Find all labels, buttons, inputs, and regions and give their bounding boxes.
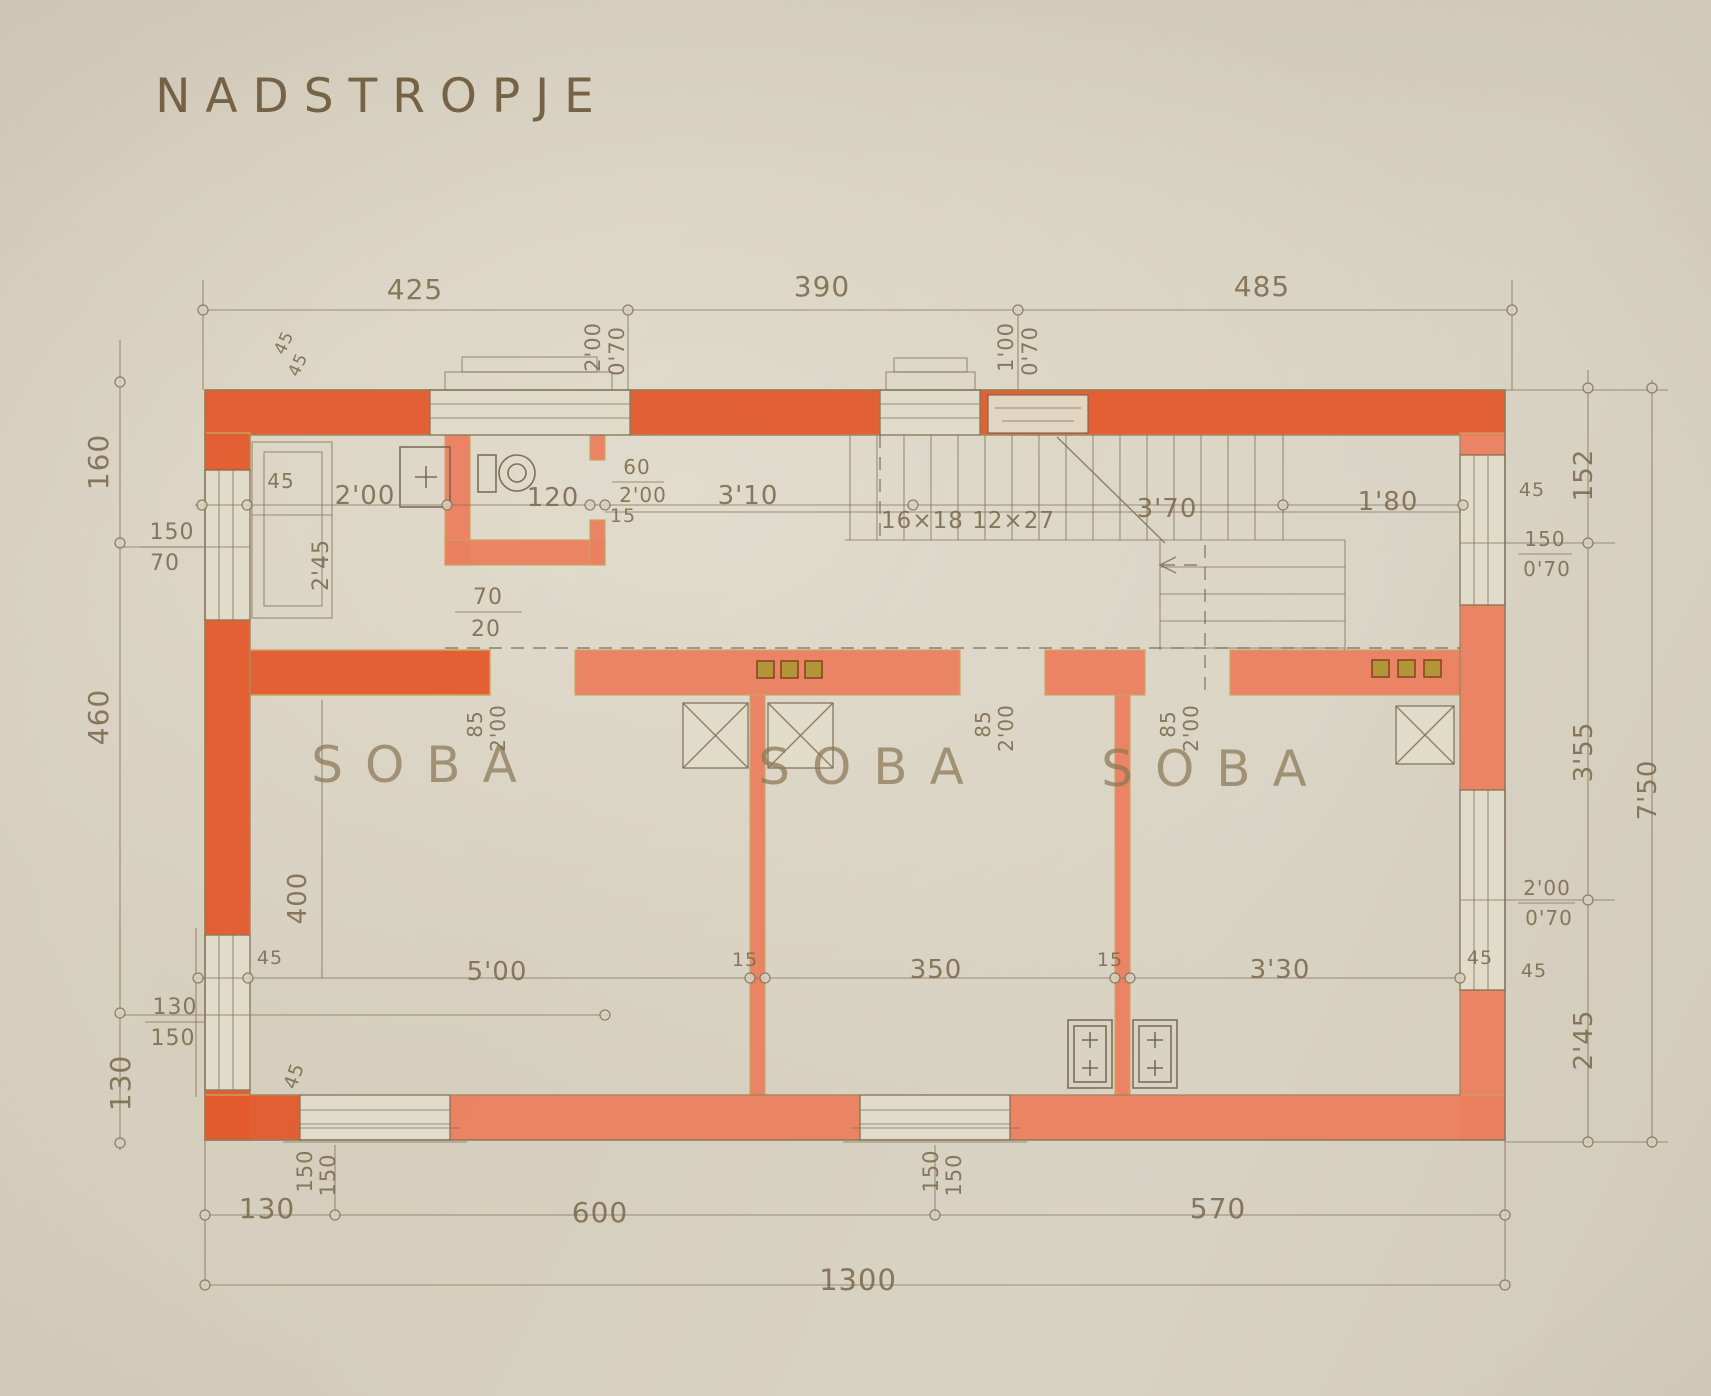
dim-room1-500: 5'00 (467, 957, 528, 987)
dim-bw2-150b: 150 (942, 1153, 966, 1196)
flue-box-3 (1396, 706, 1454, 764)
dim-bw1-150a: 150 (293, 1149, 317, 1192)
window-left-2 (196, 928, 250, 1097)
dim-wcdoor-60: 60 (623, 455, 650, 479)
chimney-recess (988, 395, 1088, 433)
dim-bottom-600: 600 (572, 1196, 628, 1229)
dim-door3-85: 85 (1156, 710, 1180, 737)
floor-plan-drawing: NADSTROPJE4253904852'000'701'000'7045451… (0, 0, 1711, 1396)
dim-right-45b: 45 (1521, 960, 1547, 982)
dim-right-750: 7'50 (1633, 760, 1663, 821)
dim-top-390: 390 (794, 270, 850, 303)
room-label-2: SOBA (758, 738, 986, 796)
dim-room2-350: 350 (910, 955, 963, 985)
flue-box-1 (683, 703, 748, 768)
dim-left-win-150: 150 (151, 1026, 196, 1051)
wc-wall-right-bottom (590, 520, 605, 565)
stove-fixture-1 (1068, 1020, 1112, 1088)
dim-right-win-070: 0'70 (1523, 557, 1571, 581)
dim-corridor-310: 3'10 (718, 481, 779, 511)
dim-bw1-150b: 150 (316, 1153, 340, 1196)
vent-grilles-right (1372, 660, 1441, 677)
window-right-1 (1460, 455, 1505, 605)
dim-bath-200: 2'00 (335, 481, 396, 511)
dim-bl-45: 45 (257, 947, 283, 969)
dim-corner-niche-20: 20 (471, 617, 501, 642)
dim-room3-330: 3'30 (1250, 955, 1311, 985)
dim-door1-85: 85 (463, 710, 487, 737)
dim-top-window-070: 0'70 (605, 326, 629, 376)
dim-top-window-200: 2'00 (581, 322, 605, 372)
dim-wc-15: 15 (610, 505, 636, 527)
dim-right-152: 152 (1569, 449, 1599, 502)
dim-door1-200: 2'00 (486, 704, 510, 752)
wc-wall-bottom (445, 540, 605, 565)
dim-left-150: 150 (150, 520, 195, 545)
room-label-3: SOBA (1101, 740, 1329, 798)
dim-left-160: 160 (82, 434, 115, 490)
dim-bw2-150a: 150 (919, 1149, 943, 1192)
dim-stair-180: 1'80 (1358, 487, 1419, 517)
dim-right-45a: 45 (1519, 479, 1545, 501)
dim-bottom-130: 130 (239, 1192, 295, 1225)
dim-wcdoor-200: 2'00 (619, 483, 667, 507)
dim-partition-15b: 15 (1097, 949, 1123, 971)
wc-wall-right-top (590, 435, 605, 460)
plan-title: NADSTROPJE (155, 69, 609, 124)
dim-bl-45rot: 45 (280, 1060, 310, 1092)
dim-right-win2-200: 2'00 (1523, 876, 1571, 900)
dim-door2-200: 2'00 (994, 704, 1018, 752)
dim-right-245: 2'45 (1569, 1010, 1599, 1071)
dim-top-425: 425 (387, 273, 443, 306)
dim-door3-200: 2'00 (1179, 704, 1203, 752)
dim-right-win-150: 150 (1524, 527, 1565, 551)
dim-niche-45: 45 (267, 469, 294, 493)
dim-door2-85: 85 (971, 710, 995, 737)
dim-partition-15a: 15 (732, 949, 758, 971)
dim-bottom-570: 570 (1190, 1192, 1246, 1225)
vent-grilles-left (757, 661, 822, 678)
dim-top-window-070b: 0'70 (1018, 326, 1042, 376)
dim-stair-370: 3'70 (1137, 494, 1198, 524)
stair-break-line (1057, 437, 1165, 543)
window-top-2 (880, 358, 980, 435)
dim-bottom-1300: 1300 (819, 1263, 897, 1297)
dim-right-355: 3'55 (1569, 722, 1599, 783)
dim-corner-niche-70: 70 (473, 585, 503, 610)
dim-room1-400: 400 (283, 872, 313, 925)
dim-wc-120: 120 (527, 483, 580, 513)
dim-left-win-130: 130 (153, 995, 198, 1020)
window-bottom-2 (843, 1095, 1027, 1142)
dim-right-win2-070: 0'70 (1525, 906, 1573, 930)
window-left-1 (205, 470, 250, 620)
stair-note: 16×18 12×27 (881, 508, 1055, 534)
dim-left-70: 70 (150, 551, 180, 576)
dim-left-460: 460 (82, 689, 115, 745)
floor-plan-sheet: NADSTROPJE4253904852'000'701'000'7045451… (0, 0, 1711, 1396)
dim-niche-245: 2'45 (309, 539, 334, 591)
washbasin-fixture (400, 447, 450, 507)
dim-top-485: 485 (1234, 270, 1290, 303)
dim-left-130v: 130 (104, 1055, 137, 1111)
dim-rightwall-45: 45 (1467, 947, 1493, 969)
stove-fixture-2 (1133, 1020, 1177, 1088)
dim-top-window-100: 1'00 (994, 322, 1018, 372)
window-bottom-1 (283, 1095, 467, 1142)
